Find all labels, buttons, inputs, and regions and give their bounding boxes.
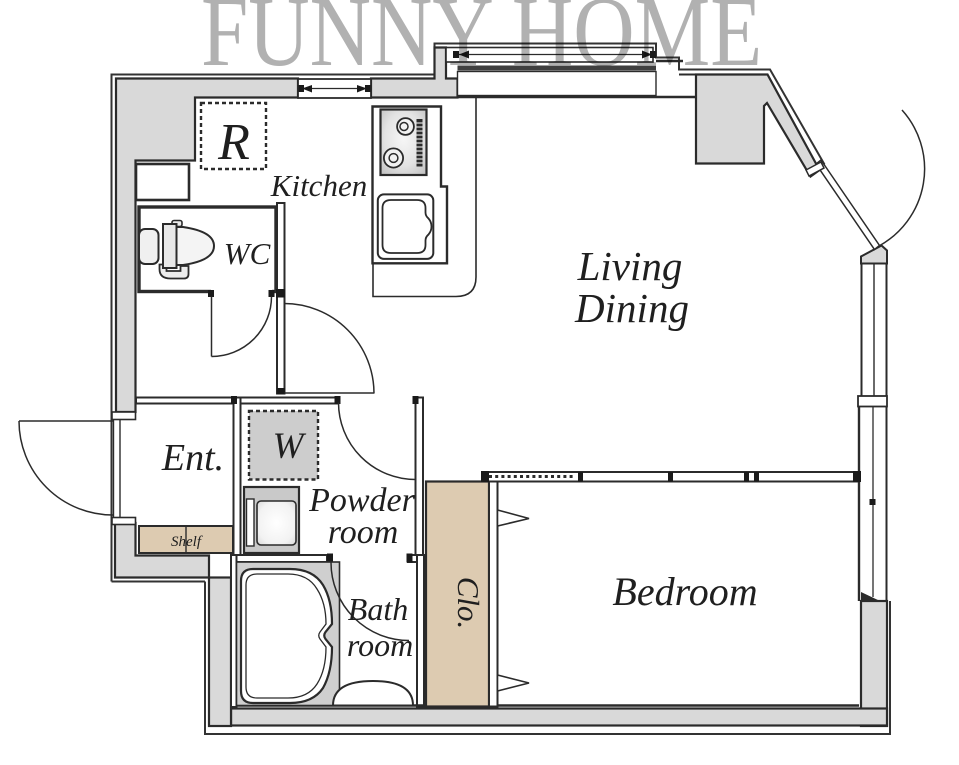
svg-text:Kitchen: Kitchen: [270, 168, 367, 203]
svg-text:Ent.: Ent.: [161, 437, 224, 479]
svg-text:Clo.: Clo.: [451, 577, 486, 630]
svg-text:WC: WC: [224, 236, 271, 271]
svg-text:Bedroom: Bedroom: [612, 569, 757, 614]
svg-text:R: R: [217, 114, 250, 171]
svg-text:W: W: [273, 426, 307, 467]
svg-text:room: room: [347, 627, 413, 663]
svg-text:Dining: Dining: [574, 285, 689, 331]
svg-text:Living: Living: [577, 243, 683, 289]
svg-text:Bath: Bath: [348, 591, 408, 627]
svg-text:Shelf: Shelf: [171, 534, 203, 550]
svg-text:room: room: [328, 514, 399, 551]
